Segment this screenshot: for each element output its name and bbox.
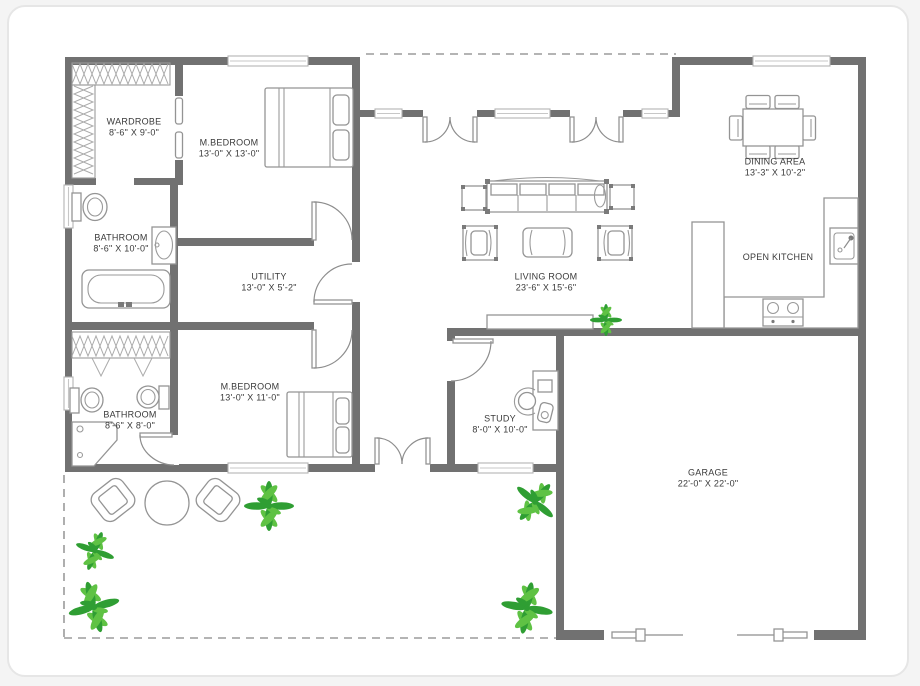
room-label-master-bedroom-1: M.BEDROOM 13'-0" X 13'-0" [199, 138, 260, 159]
armchair [462, 225, 498, 261]
plant-icon [244, 481, 294, 531]
plant-icon [69, 525, 120, 576]
closet-rails [72, 332, 170, 376]
side-table [609, 184, 635, 210]
room-name: UTILITY [251, 272, 286, 282]
coffee-table [523, 228, 572, 257]
wall-openings [96, 96, 814, 641]
room-name: M.BEDROOM [221, 382, 280, 392]
room-label-dining-area: DINING AREA 13'-3" X 10'-2" [745, 157, 806, 178]
door-swing-bedroom2 [312, 330, 352, 368]
door-swing-bedroom1 [312, 202, 352, 240]
room-name: DINING AREA [745, 157, 806, 167]
bathtub [82, 270, 170, 308]
room-label-wardrobe: WARDROBE 8'-6" X 9'-0" [107, 117, 162, 138]
room-label-open-kitchen: OPEN KITCHEN [743, 252, 814, 263]
room-label-study: STUDY 8'-0" X 10'-0" [472, 414, 527, 435]
door-swing-bathroom2 [140, 433, 174, 465]
patio-dashed-line [64, 475, 556, 638]
room-label-bathroom-2: BATHROOM 8'-6" X 8'-0" [103, 410, 156, 431]
room-name: BATHROOM [103, 410, 156, 420]
plant-icon [62, 575, 126, 639]
bed-master-2 [287, 392, 352, 457]
room-dims: 13'-0" X 11'-0" [220, 392, 280, 403]
entry-double-door [375, 438, 430, 464]
room-name: OPEN KITCHEN [743, 252, 814, 262]
patio-table [145, 481, 189, 525]
sideboard [487, 315, 593, 329]
room-label-utility: UTILITY 13'-0" X 5'-2" [241, 272, 296, 293]
living-double-door-right [570, 117, 623, 142]
living-double-door-left [423, 117, 477, 142]
bed-master-1 [265, 88, 353, 167]
room-label-garage: GARAGE 22'-0" X 22'-0" [678, 468, 739, 489]
room-label-living-room: LIVING ROOM 23'-6" X 15'-6" [515, 272, 578, 293]
room-name: GARAGE [688, 468, 728, 478]
desk [533, 371, 558, 430]
plant-icon [497, 578, 557, 638]
door-swing-study [451, 339, 493, 381]
room-dims: 13'-0" X 5'-2" [241, 282, 296, 293]
toilet [72, 193, 107, 221]
sofa [485, 178, 609, 215]
room-name: M.BEDROOM [200, 138, 259, 148]
room-dims: 8'-6" X 10'-0" [93, 243, 148, 254]
floorplan-card: WARDROBE 8'-6" X 9'-0" M.BEDROOM 13'-0" … [7, 5, 909, 677]
floorplan-drawing [7, 5, 909, 677]
door-swing-utility [314, 264, 352, 304]
toilet [70, 388, 103, 413]
room-dims: 8'-6" X 8'-0" [103, 420, 156, 431]
room-dims: 13'-3" X 10'-2" [745, 167, 806, 178]
room-name: BATHROOM [94, 233, 147, 243]
patio-chair [193, 475, 244, 525]
kitchen-sink [830, 228, 858, 264]
doors [140, 98, 807, 641]
dining-set [730, 96, 816, 159]
toilet [137, 386, 169, 409]
room-dims: 8'-6" X 9'-0" [107, 127, 162, 138]
room-name: STUDY [484, 414, 516, 424]
room-dims: 8'-0" X 10'-0" [472, 424, 527, 435]
room-dims: 23'-6" X 15'-6" [515, 282, 578, 293]
desk-chair [514, 388, 535, 415]
side-table [461, 185, 487, 211]
room-dims: 13'-0" X 13'-0" [199, 148, 260, 159]
room-label-master-bedroom-2: M.BEDROOM 13'-0" X 11'-0" [220, 382, 280, 403]
room-dims: 22'-0" X 22'-0" [678, 478, 739, 489]
room-name: WARDROBE [107, 117, 162, 127]
room-name: LIVING ROOM [515, 272, 578, 282]
room-label-bathroom-1: BATHROOM 8'-6" X 10'-0" [93, 233, 148, 254]
armchair [597, 225, 633, 261]
stove [763, 299, 803, 326]
sink [152, 227, 176, 264]
patio-set [88, 475, 244, 525]
patio-chair [88, 475, 139, 525]
